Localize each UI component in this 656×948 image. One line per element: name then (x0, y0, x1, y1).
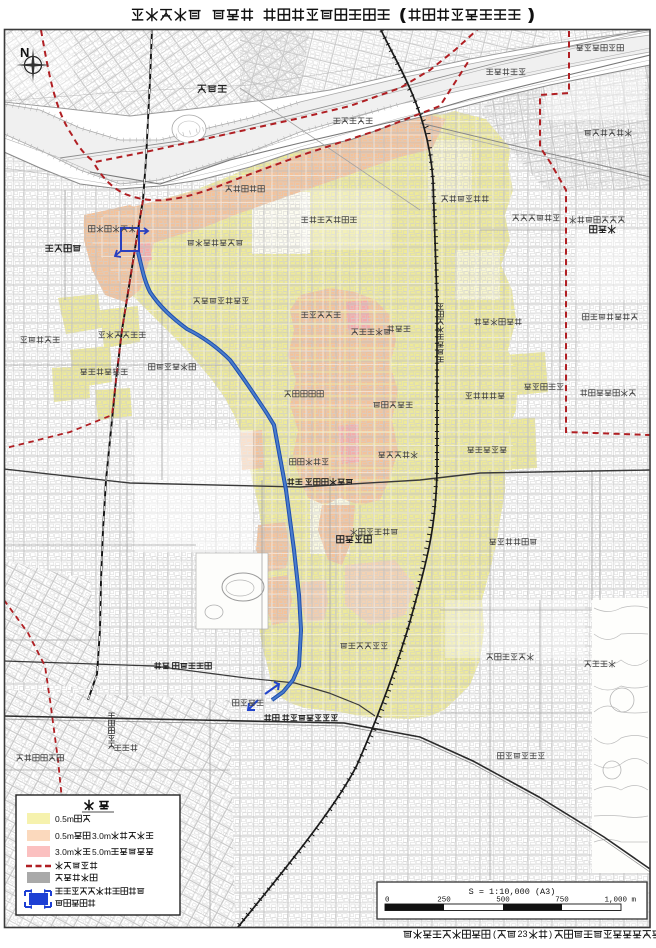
svg-text:(: ( (493, 929, 496, 939)
svg-text:0: 0 (385, 897, 390, 905)
svg-text:23: 23 (518, 929, 528, 939)
svg-text:3.0m: 3.0m (92, 831, 111, 841)
svg-text:S = 1:10,000 (A3): S = 1:10,000 (A3) (469, 887, 556, 897)
svg-text:N: N (20, 45, 29, 60)
svg-text:3.0m: 3.0m (55, 847, 74, 857)
svg-text:5.0m: 5.0m (92, 847, 111, 857)
svg-text:1,000 m: 1,000 m (604, 897, 636, 905)
svg-text:250: 250 (437, 897, 451, 905)
svg-text:(: ( (400, 7, 405, 24)
svg-text:500: 500 (496, 897, 510, 905)
svg-text:750: 750 (555, 897, 569, 905)
svg-text:): ) (549, 929, 552, 939)
svg-text:0.5m: 0.5m (55, 814, 74, 824)
svg-text:0.5m: 0.5m (55, 831, 74, 841)
svg-text:): ) (529, 7, 534, 24)
